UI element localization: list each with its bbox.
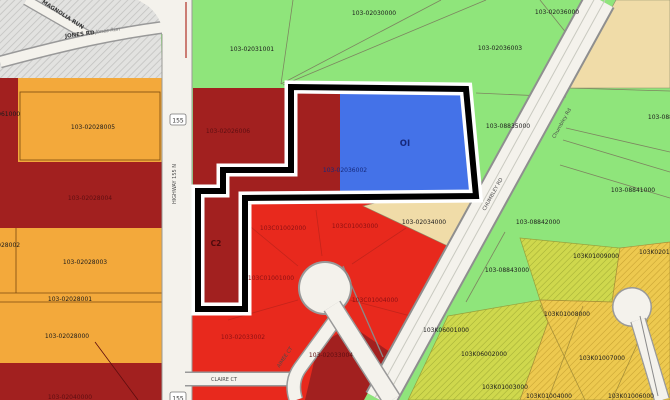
parcel-label: 103-02026006 bbox=[206, 128, 250, 135]
parcel-label: 103-02033004 bbox=[309, 352, 353, 359]
parcel-label: 103-02040000 bbox=[48, 394, 92, 400]
parcel-label: 103K01004000 bbox=[526, 393, 572, 400]
parcel-label: 103C01003000 bbox=[332, 223, 378, 230]
parcel-label: 103-08841000 bbox=[611, 187, 655, 194]
claire-ct-label: CLAIRE CT bbox=[211, 377, 238, 383]
parcel-label: 103-02028005 bbox=[71, 124, 115, 131]
parcel-label: 103C01001000 bbox=[248, 275, 294, 282]
parcel-region-maroon-sliver[interactable] bbox=[0, 78, 18, 162]
parcel-label: 103-02036000 bbox=[535, 9, 579, 16]
parcel-label: 103K06002000 bbox=[461, 351, 507, 358]
parcel-label: 103-02028004 bbox=[68, 195, 112, 202]
parcel-label: 103K02010000 bbox=[639, 249, 670, 256]
zone-label-c2: C2 bbox=[211, 239, 222, 248]
parcel-label: 103-02030000 bbox=[352, 10, 396, 17]
parcel-label: 103-08835000 bbox=[486, 123, 530, 130]
parcel-label: 103-02034000 bbox=[402, 219, 446, 226]
parcel-label: 103-02033002 bbox=[221, 334, 265, 341]
parcel-label: 103-02036002 bbox=[323, 167, 367, 174]
parcel-label: 103-08843000 bbox=[485, 267, 529, 274]
parcel-label: 103-02061000 bbox=[0, 111, 20, 118]
zoning-parcel-map[interactable]: 155 155 103-02031001 103-02030000 103-02… bbox=[0, 0, 670, 400]
zone-label-oi: OI bbox=[400, 139, 410, 149]
highway-shield-top: 155 bbox=[170, 114, 186, 125]
parcel-label: 103K06001000 bbox=[423, 327, 469, 334]
parcel-label: 103K01009000 bbox=[573, 253, 619, 260]
parcel-label: 103K01007000 bbox=[579, 355, 625, 362]
parcel-label: 103C01004000 bbox=[352, 297, 398, 304]
parcel-label: 103-08842000 bbox=[516, 219, 560, 226]
map-viewport: 155 155 103-02031001 103-02030000 103-02… bbox=[0, 0, 670, 400]
parcel-label: 103K01008000 bbox=[544, 311, 590, 318]
parcel-label: 103K01006000 bbox=[608, 393, 654, 400]
parcel-label: 103-02028000 bbox=[45, 333, 89, 340]
highway-shield-number: 155 bbox=[172, 118, 184, 125]
highway-155-label: HIGHWAY 155 N bbox=[172, 164, 178, 204]
highway-shield-number: 155 bbox=[172, 396, 184, 400]
parcel-label: 103-08840000 bbox=[648, 114, 670, 121]
parcel-label: 103-02028002 bbox=[0, 242, 20, 249]
highway-shield-bottom: 155 bbox=[170, 392, 186, 400]
parcel-label: 103-02036003 bbox=[478, 45, 522, 52]
parcel-label: 103-02028003 bbox=[63, 259, 107, 266]
parcel-label: 103-02031001 bbox=[230, 46, 274, 53]
parcel-label: 103-02028001 bbox=[48, 296, 92, 303]
parcel-label: 103K01003000 bbox=[482, 384, 528, 391]
parcel-label: 103C01002000 bbox=[260, 225, 306, 232]
